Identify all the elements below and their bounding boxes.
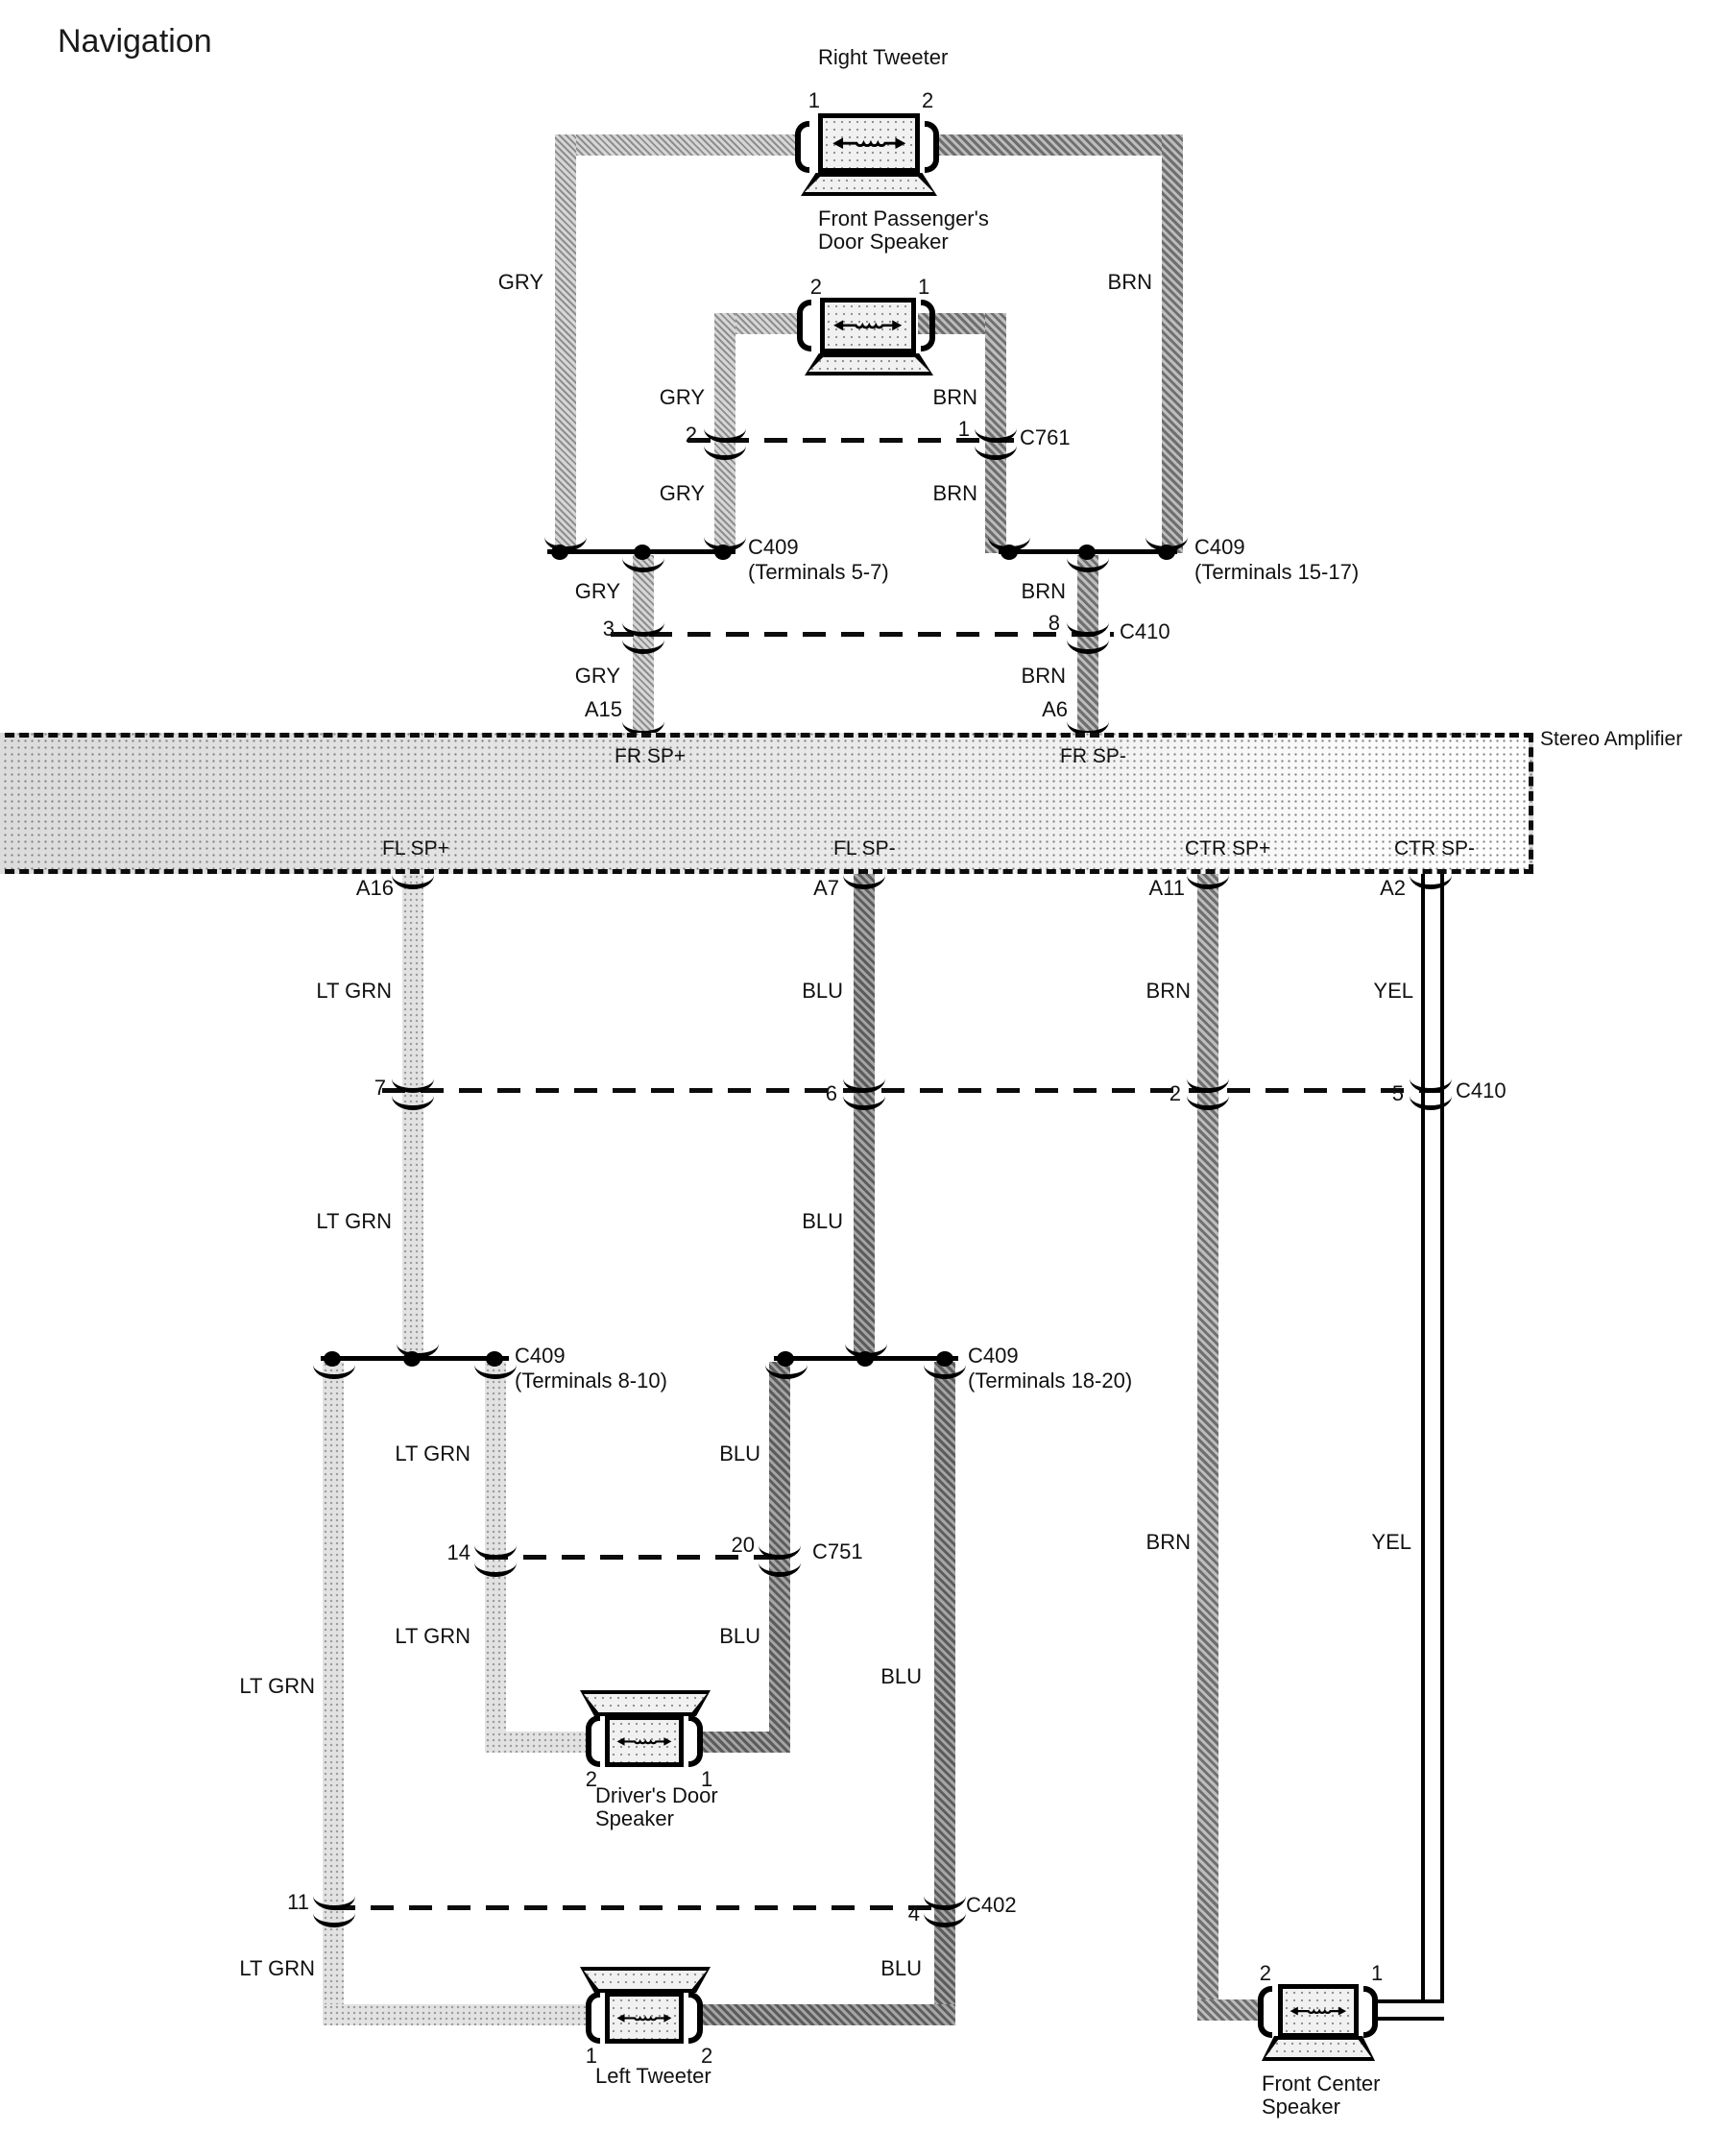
left-tweeter-speaker-symbol [605, 1992, 684, 2044]
terminal-bracket-left [586, 1992, 600, 2044]
wire-label-yel: YEL [1373, 980, 1413, 1003]
wire-label-lt-grn: LT GRN [395, 1442, 470, 1466]
connector-arc [704, 443, 746, 460]
front-passenger-speaker-cone [805, 353, 933, 375]
connector-arc [1187, 1093, 1229, 1110]
terminal-bracket-left [1258, 1986, 1272, 2038]
wire-label-brn: BRN [1108, 271, 1152, 294]
wire-ltgrn-lt-horiz [323, 2004, 590, 2025]
connector-arc [622, 555, 664, 572]
voice-coil-icon [830, 126, 909, 160]
amp-pin-fl-sp-plus: FL SP+ [382, 837, 449, 860]
connector-label-c751: C751 [812, 1540, 863, 1563]
connector-label-c761: C761 [1020, 426, 1071, 449]
wire-label-blu: BLU [880, 1957, 922, 1980]
front-passenger-speaker-label: Front Passenger's Door Speaker [818, 207, 989, 254]
wire-gry-rt-top [555, 134, 799, 156]
left-tweeter-cone [580, 1967, 711, 1993]
wire-label-gry: GRY [575, 665, 620, 688]
front-center-speaker-cone [1262, 2036, 1375, 2061]
wire-brn-rt-right [1162, 134, 1183, 553]
stereo-amplifier-label: Stereo Amplifier [1540, 728, 1682, 751]
terminal-bracket-right [925, 121, 939, 173]
front-center-speaker-label: Front Center Speaker [1262, 2072, 1381, 2119]
connector-label-c409-terminals-15-17: (Terminals 15-17) [1194, 561, 1359, 584]
wire-label-gry: GRY [575, 580, 620, 603]
right-tweeter-speaker-symbol [818, 113, 920, 173]
connector-label-c409: C409 [1194, 536, 1245, 559]
amp-pin-a16: A16 [356, 876, 394, 901]
terminal-bracket-left [586, 1715, 600, 1767]
wire-blu-amp-down [854, 874, 875, 1360]
connector-label-c409-terminals-8-10: (Terminals 8-10) [515, 1369, 667, 1393]
wire-ltgrn-amp-down [402, 874, 423, 1360]
connector-arc [313, 1910, 355, 1927]
wire-yel-center-down [1421, 874, 1444, 2019]
wire-gry-rt-left [555, 134, 576, 553]
terminal-bracket-right [688, 1715, 703, 1767]
amp-pin-fl-sp-minus: FL SP- [833, 837, 896, 860]
terminal-bracket-right [921, 300, 935, 351]
connector-label-c409: C409 [748, 536, 799, 559]
wire-brn-rt-top [937, 134, 1183, 156]
wire-label-gry: GRY [498, 271, 543, 294]
voice-coil-icon [615, 2003, 674, 2033]
wire-blu-lt-horiz [697, 2004, 955, 2025]
right-tweeter-pin-1: 1 [808, 88, 820, 113]
wire-label-brn: BRN [1146, 1531, 1191, 1554]
c751-pin-20: 20 [732, 1533, 755, 1558]
terminal-bracket-right [1363, 1986, 1378, 2038]
c751-pin-14: 14 [447, 1540, 470, 1565]
terminal-bracket-left [797, 300, 811, 351]
front-center-speaker-symbol [1278, 1984, 1359, 2038]
drivers-door-speaker-symbol [605, 1715, 684, 1767]
c410-pin-7: 7 [374, 1076, 386, 1101]
connector-arc [622, 637, 664, 654]
front-center-pin-1: 1 [1371, 1961, 1383, 1986]
connector-arc [1187, 872, 1229, 889]
wire-label-blu: BLU [719, 1442, 760, 1466]
connector-arc [759, 1560, 801, 1577]
wire-label-blu: BLU [802, 980, 843, 1003]
c410-pin-8: 8 [1049, 611, 1060, 636]
wire-label-brn: BRN [933, 386, 977, 409]
connector-arc [474, 1362, 517, 1379]
wiring-diagram-navigation: Navigation [0, 0, 1736, 2156]
connector-arc [843, 1093, 885, 1110]
amp-pin-a6: A6 [1042, 697, 1068, 722]
wire-label-lt-grn: LT GRN [239, 1675, 315, 1698]
connector-arc [924, 1910, 966, 1927]
connector-arc [1067, 555, 1109, 572]
connector-arc [924, 1362, 966, 1379]
connector-line-c410-upper [611, 632, 1114, 637]
amp-pin-a7: A7 [813, 876, 839, 901]
connector-arc [1410, 872, 1452, 889]
front-passenger-pin-1: 1 [918, 275, 929, 300]
connector-label-c409: C409 [968, 1344, 1019, 1368]
amp-pin-a2: A2 [1380, 876, 1406, 901]
wire-label-brn: BRN [1022, 665, 1066, 688]
wire-label-blu: BLU [802, 1210, 843, 1233]
amp-pin-ctr-sp-plus: CTR SP+ [1185, 837, 1270, 860]
wire-label-lt-grn: LT GRN [395, 1625, 470, 1648]
wire-label-gry: GRY [660, 482, 705, 505]
c410-pin-3: 3 [603, 617, 615, 642]
voice-coil-icon [1288, 1996, 1349, 2026]
c402-pin-4: 4 [908, 1902, 920, 1926]
wire-brn-center-down [1197, 874, 1218, 2019]
wire-label-lt-grn: LT GRN [316, 1210, 392, 1233]
voice-coil-icon [615, 1727, 674, 1756]
connector-label-c409: C409 [515, 1344, 566, 1368]
connector-line-c410-lower [382, 1088, 1446, 1093]
wire-label-lt-grn: LT GRN [239, 1957, 315, 1980]
connector-arc [1067, 637, 1109, 654]
stereo-amplifier-box [0, 733, 1533, 874]
amp-pin-a15: A15 [585, 697, 622, 722]
connector-arc [975, 443, 1017, 460]
connector-arc [474, 1560, 517, 1577]
connector-label-c410: C410 [1456, 1079, 1507, 1102]
c761-pin-1: 1 [958, 417, 970, 442]
wire-label-brn: BRN [1146, 980, 1191, 1003]
wire-blu-dds-horiz [697, 1732, 790, 1753]
left-tweeter-label: Left Tweeter [595, 2065, 711, 2088]
wire-brn-fcs-horиз [1197, 1999, 1263, 2021]
c410-pin-2: 2 [1169, 1081, 1181, 1106]
c402-pin-11: 11 [287, 1890, 309, 1915]
voice-coil-icon [831, 309, 904, 342]
terminal-bracket-left [795, 121, 809, 173]
amp-pin-fr-sp-minus: FR SP- [1060, 745, 1126, 768]
wire-label-blu: BLU [880, 1665, 922, 1688]
page-title: Navigation [58, 23, 212, 61]
wire-label-yel: YEL [1371, 1531, 1411, 1554]
connector-line-c402 [332, 1905, 951, 1910]
wire-label-brn: BRN [1022, 580, 1066, 603]
wire-label-lt-grn: LT GRN [316, 980, 392, 1003]
front-center-pin-2: 2 [1260, 1961, 1271, 1986]
wire-label-blu: BLU [719, 1625, 760, 1648]
connector-label-c409-terminals-5-7: (Terminals 5-7) [748, 561, 889, 584]
terminal-bracket-right [688, 1992, 703, 2044]
wire-label-gry: GRY [660, 386, 705, 409]
connector-label-c410: C410 [1120, 620, 1170, 643]
amp-pin-a11: A11 [1148, 876, 1185, 901]
front-passenger-speaker-symbol [820, 298, 916, 353]
wire-label-brn: BRN [933, 482, 977, 505]
drivers-door-speaker-label: Driver's Door Speaker [595, 1784, 718, 1830]
connector-arc [392, 1093, 434, 1110]
c410-pin-6: 6 [826, 1081, 837, 1106]
connector-label-c402: C402 [966, 1894, 1017, 1917]
amp-pin-fr-sp-plus: FR SP+ [615, 745, 686, 768]
connector-arc [392, 872, 434, 889]
right-tweeter-cone [801, 173, 937, 196]
connector-label-c409-terminals-18-20: (Terminals 18-20) [968, 1369, 1132, 1393]
wire-ltgrn-dds-horiz [485, 1732, 591, 1753]
connector-arc [1410, 1093, 1452, 1110]
connector-arc [313, 1362, 355, 1379]
connector-arc [843, 872, 885, 889]
drivers-door-speaker-cone [580, 1690, 711, 1716]
right-tweeter-label: Right Tweeter [818, 46, 948, 69]
amp-pin-ctr-sp-minus: CTR SP- [1394, 837, 1475, 860]
right-tweeter-pin-2: 2 [922, 88, 933, 113]
front-passenger-pin-2: 2 [810, 275, 822, 300]
wire-yel-fcs-horiz [1377, 1999, 1444, 2021]
c761-pin-2: 2 [686, 423, 697, 448]
c410-pin-5: 5 [1392, 1081, 1404, 1106]
